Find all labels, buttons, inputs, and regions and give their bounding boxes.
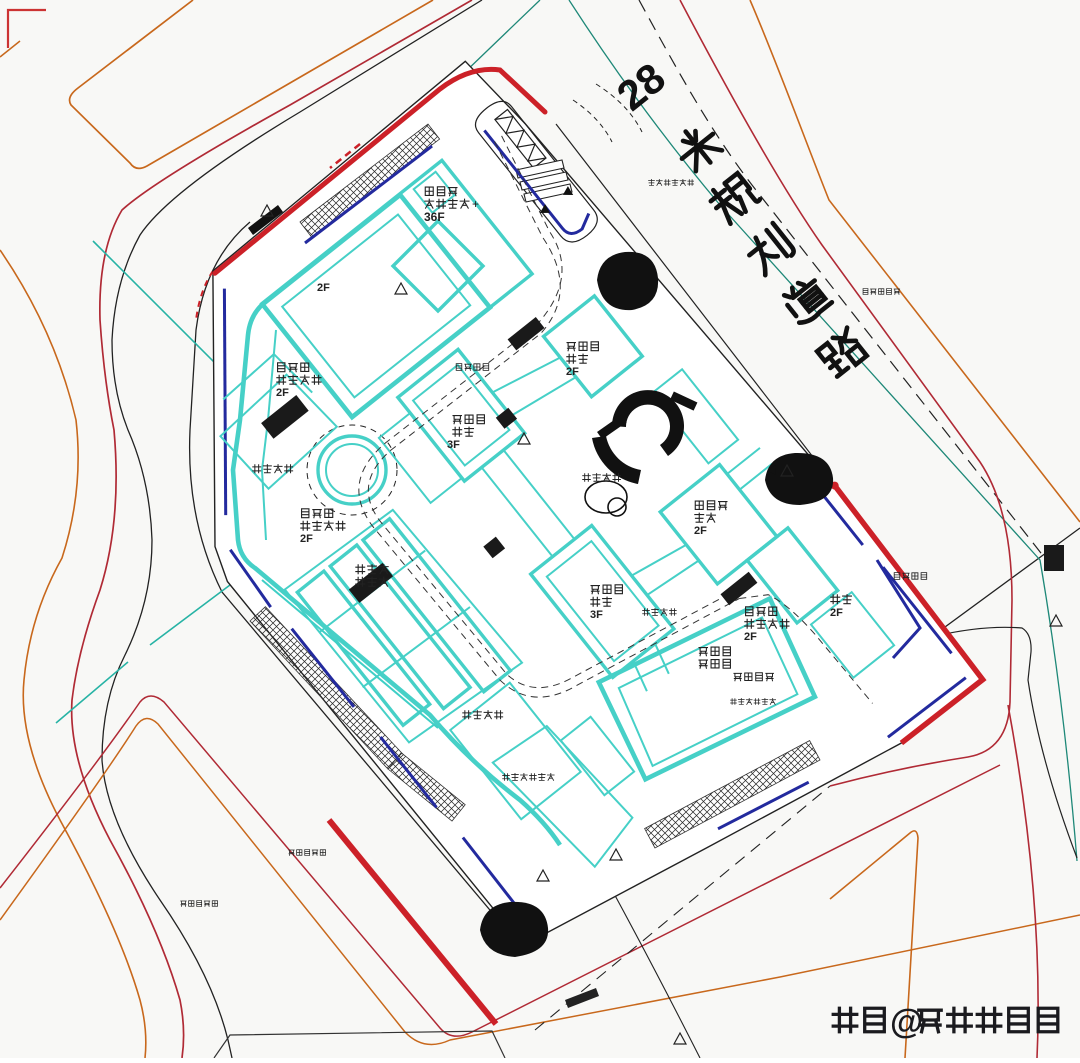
svg-text:36F: 36F (424, 210, 445, 224)
svg-text:3F: 3F (590, 609, 603, 621)
svg-text:2F: 2F (830, 607, 843, 619)
svg-text:2F: 2F (300, 533, 313, 545)
svg-text:2F: 2F (317, 282, 330, 294)
svg-text:2F: 2F (694, 525, 707, 537)
svg-text:2F: 2F (566, 366, 579, 378)
svg-text:2F: 2F (276, 387, 289, 399)
svg-text:2F: 2F (744, 631, 757, 643)
svg-text:3F: 3F (447, 439, 460, 451)
svg-text:+: + (472, 197, 479, 211)
